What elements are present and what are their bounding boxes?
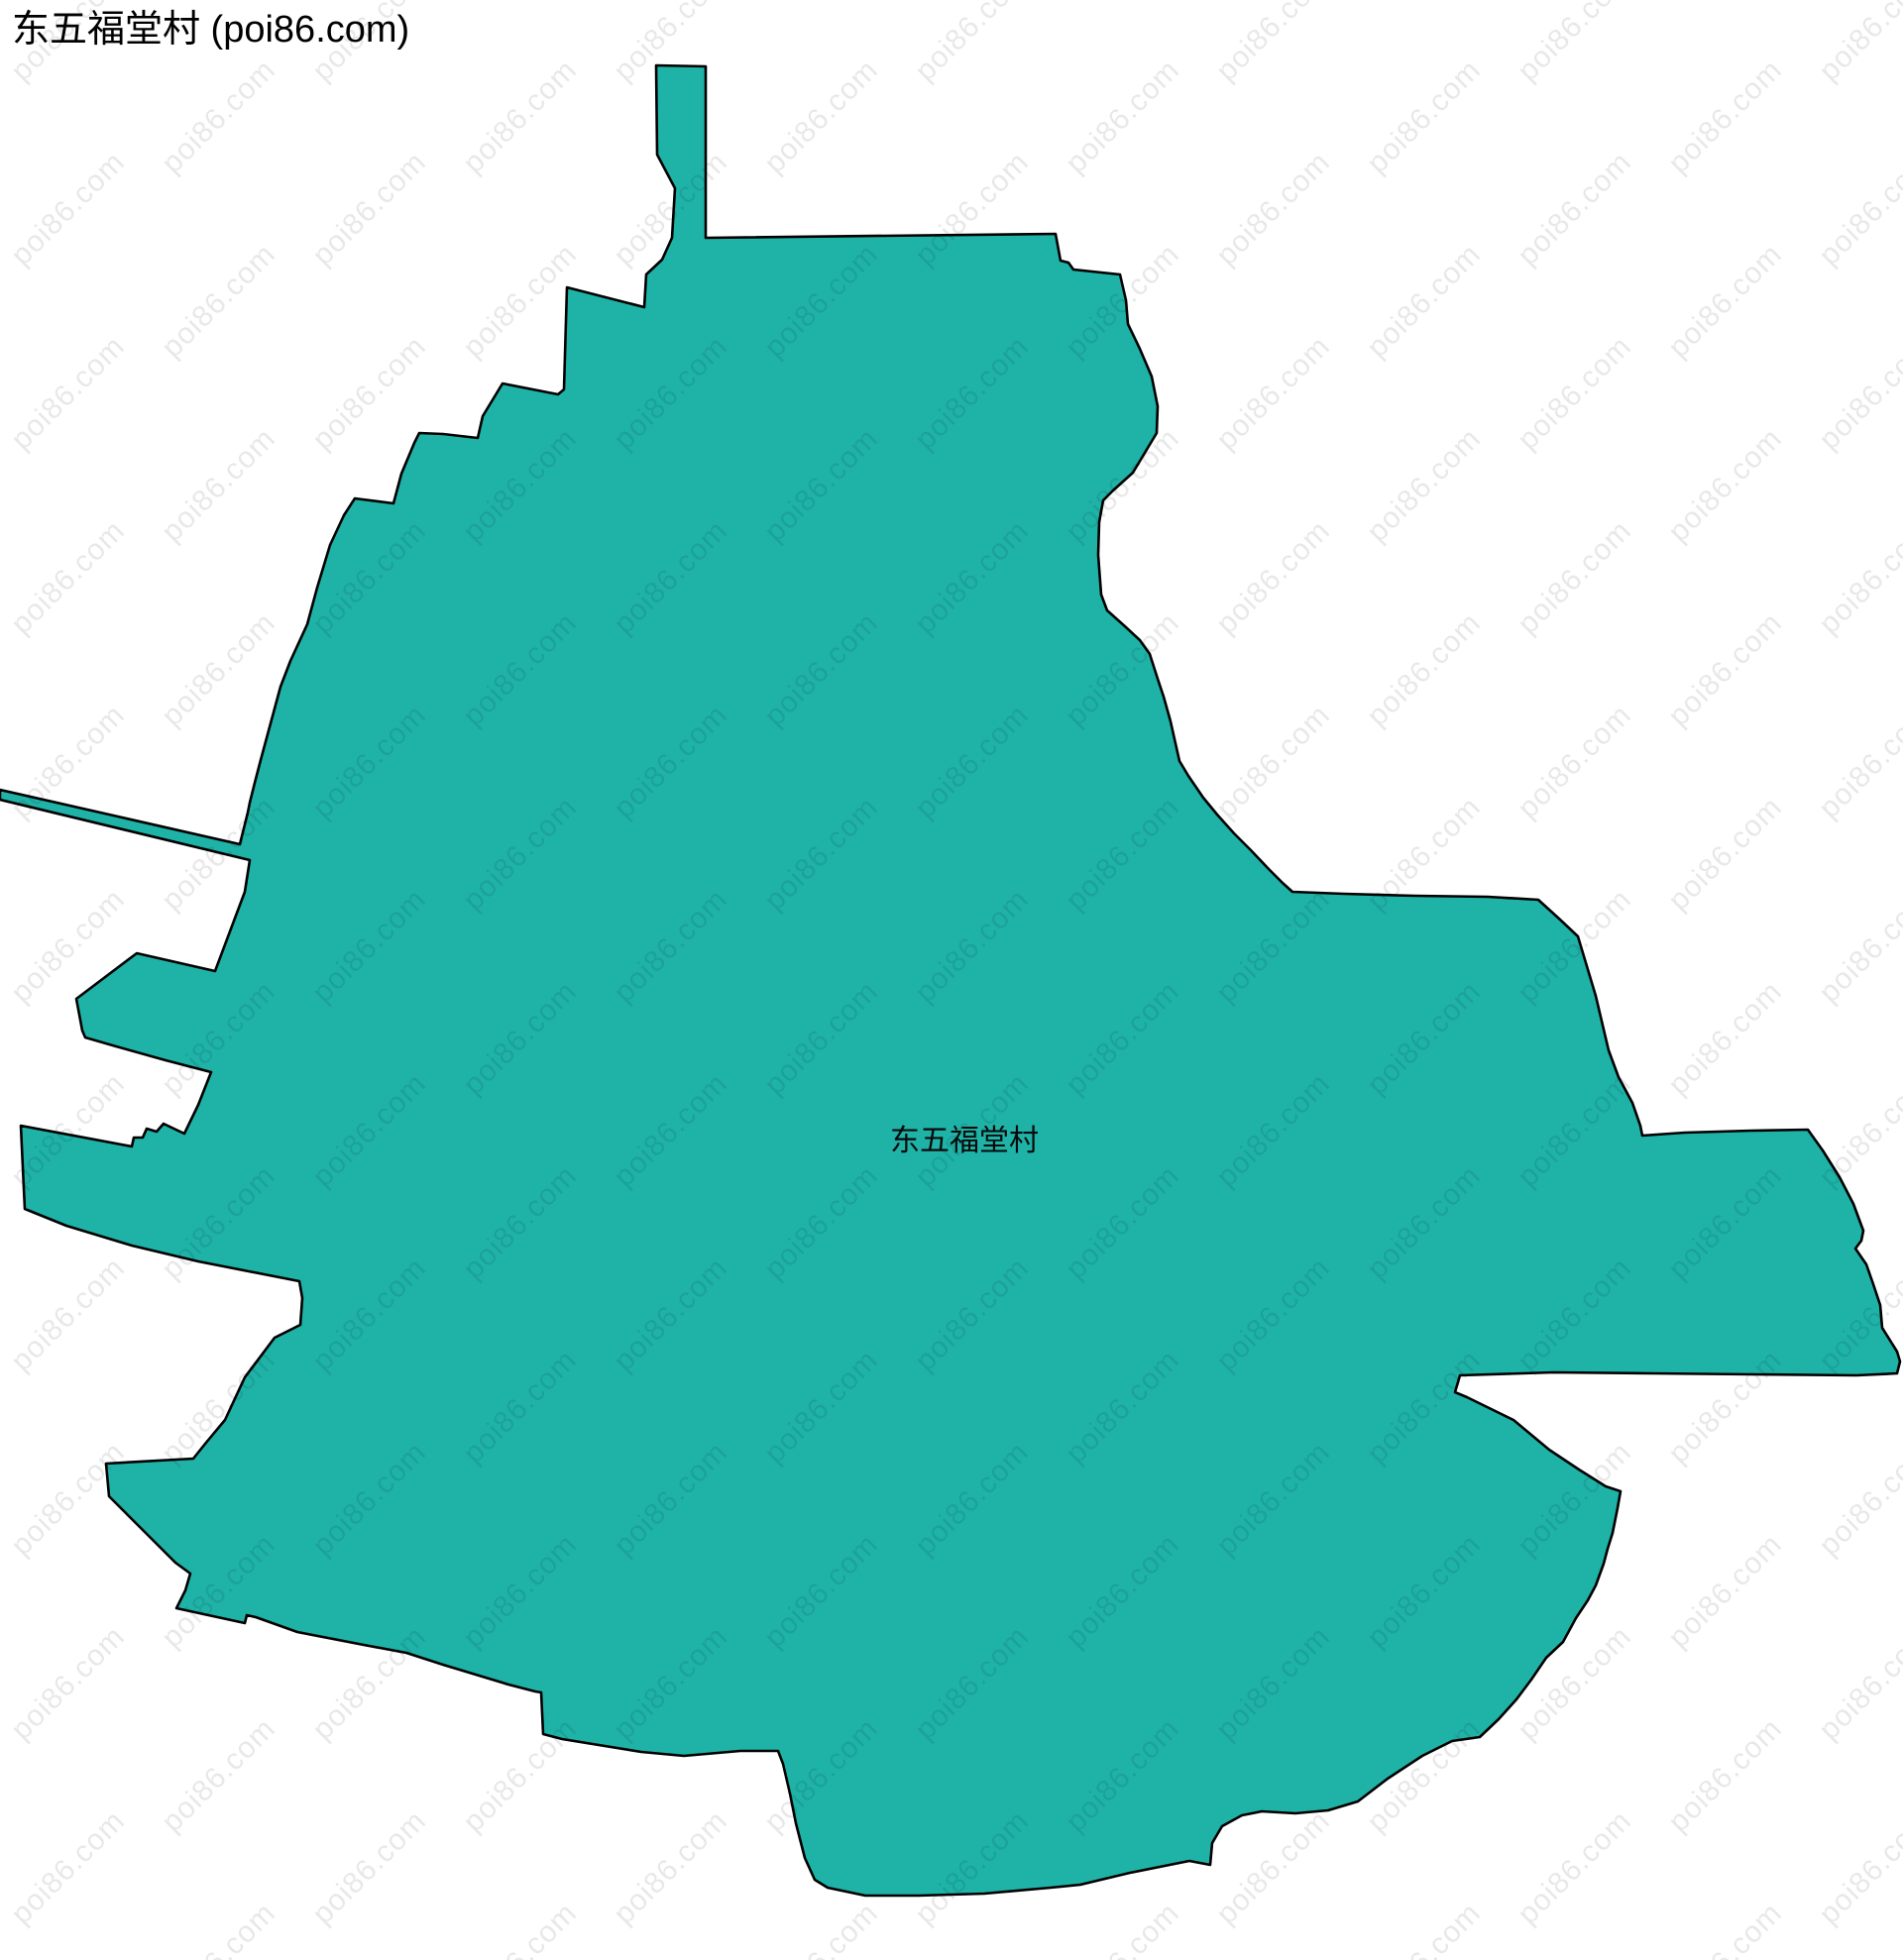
- map-page: 东五福堂村 (poi86.com) 东五福堂村 poi86.compoi86.c…: [0, 0, 1903, 1960]
- boundary-map: [0, 0, 1903, 1960]
- region-label: 东五福堂村: [890, 1116, 1039, 1159]
- region-polygon: [0, 65, 1900, 1896]
- page-title: 东五福堂村 (poi86.com): [12, 8, 409, 54]
